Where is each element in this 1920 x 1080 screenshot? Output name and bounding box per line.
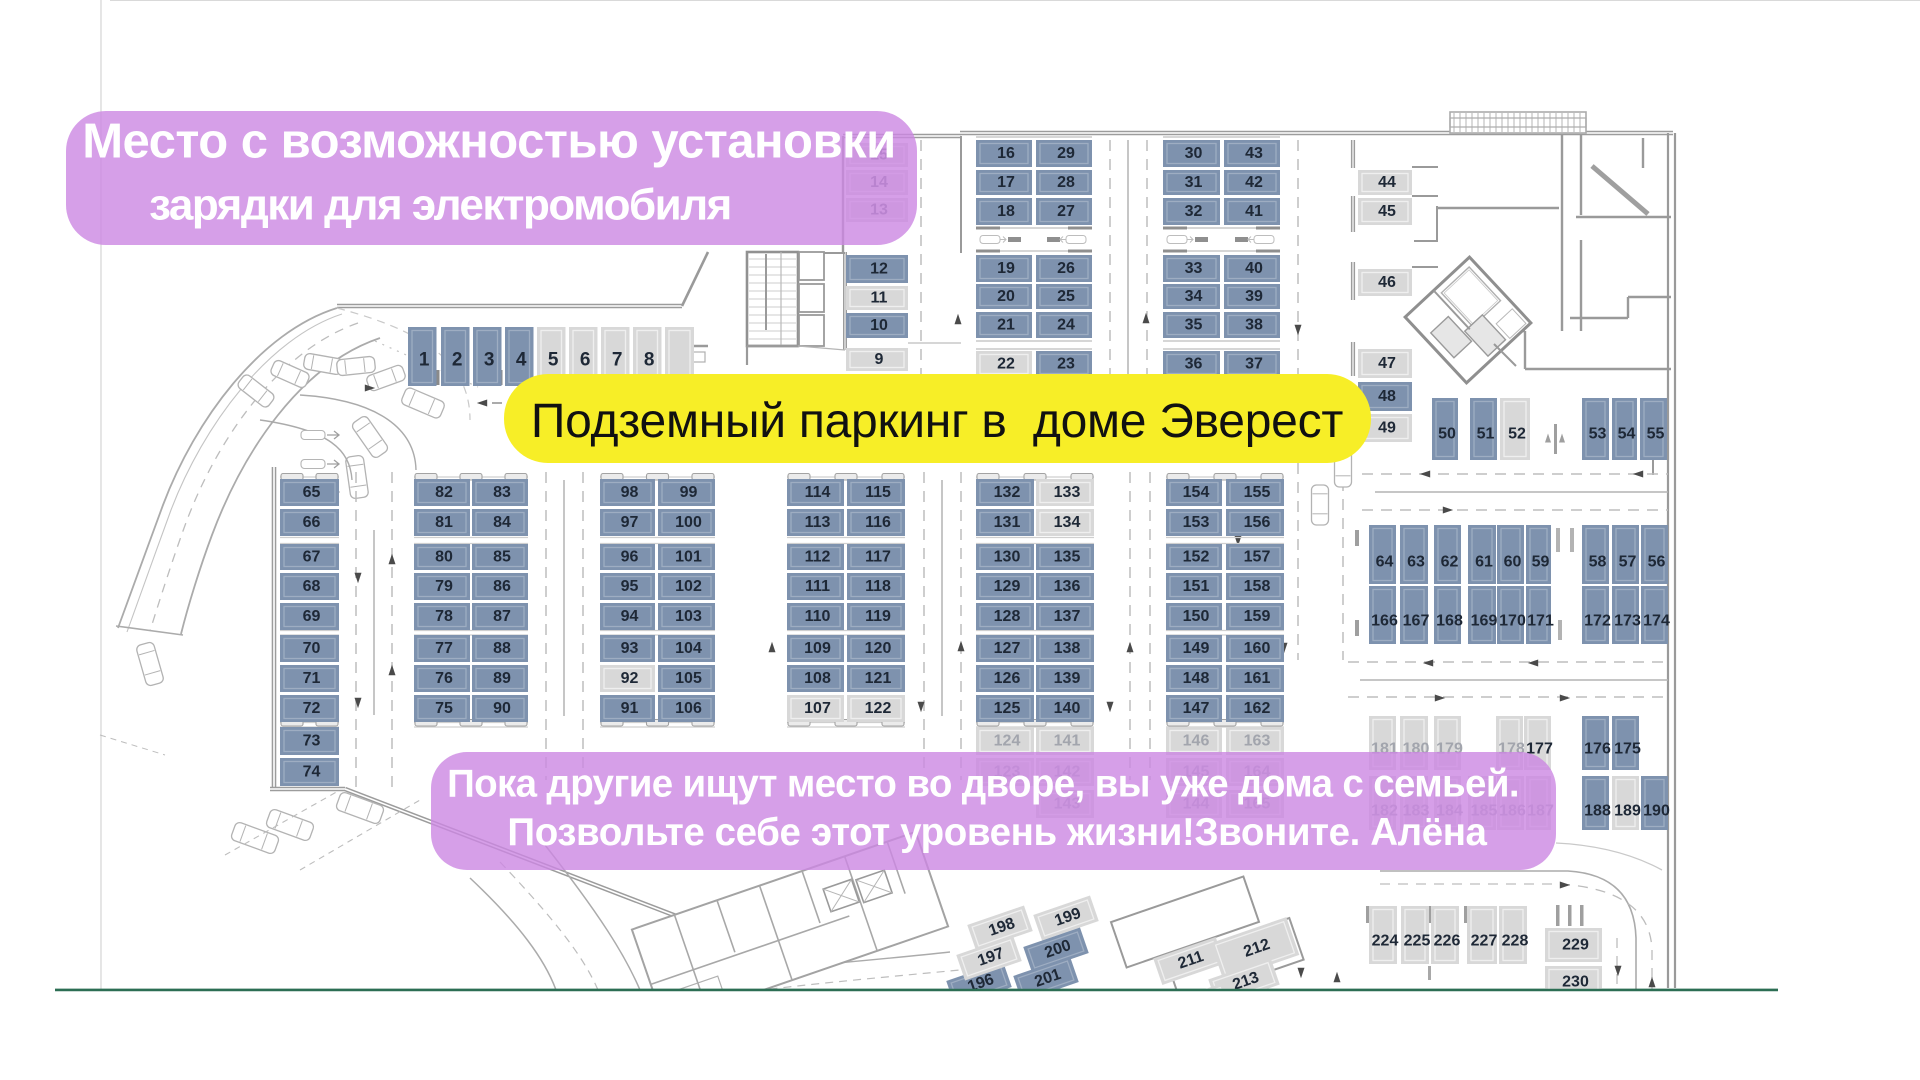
svg-text:131: 131 [994, 514, 1021, 531]
svg-text:42: 42 [1245, 174, 1263, 191]
svg-text:3: 3 [484, 350, 495, 371]
svg-text:105: 105 [675, 670, 702, 687]
svg-text:74: 74 [303, 764, 321, 781]
svg-text:161: 161 [1244, 670, 1271, 687]
svg-text:60: 60 [1504, 554, 1522, 571]
svg-text:34: 34 [1185, 288, 1203, 305]
svg-text:160: 160 [1244, 640, 1271, 657]
svg-text:124: 124 [994, 733, 1021, 750]
svg-text:41: 41 [1245, 203, 1263, 220]
svg-text:10: 10 [870, 317, 888, 334]
svg-text:104: 104 [675, 640, 702, 657]
svg-text:Место с возможностью установки: Место с возможностью установки [82, 115, 896, 169]
svg-text:93: 93 [621, 640, 639, 657]
svg-text:66: 66 [303, 514, 321, 531]
svg-text:98: 98 [621, 484, 639, 501]
svg-text:75: 75 [435, 700, 453, 717]
svg-text:225: 225 [1404, 933, 1431, 950]
svg-text:11: 11 [871, 290, 888, 307]
svg-text:148: 148 [1183, 670, 1210, 687]
svg-text:32: 32 [1185, 203, 1203, 220]
svg-text:76: 76 [435, 670, 453, 687]
svg-text:82: 82 [435, 484, 453, 501]
svg-text:88: 88 [493, 640, 511, 657]
svg-text:94: 94 [621, 608, 639, 625]
svg-text:122: 122 [865, 700, 892, 717]
svg-text:159: 159 [1244, 608, 1271, 625]
svg-text:118: 118 [865, 578, 891, 595]
svg-text:48: 48 [1378, 388, 1396, 405]
svg-text:78: 78 [435, 608, 453, 625]
svg-text:70: 70 [303, 640, 321, 657]
svg-text:167: 167 [1403, 613, 1430, 630]
svg-text:68: 68 [303, 578, 321, 595]
svg-text:71: 71 [303, 670, 321, 687]
svg-text:175: 175 [1614, 741, 1641, 758]
svg-text:47: 47 [1378, 355, 1396, 372]
svg-text:226: 226 [1434, 933, 1461, 950]
svg-text:36: 36 [1185, 356, 1203, 373]
svg-text:35: 35 [1185, 317, 1203, 334]
svg-text:45: 45 [1378, 203, 1396, 220]
svg-text:31: 31 [1185, 174, 1203, 191]
svg-text:138: 138 [1054, 640, 1081, 657]
svg-text:125: 125 [994, 700, 1021, 717]
svg-text:110: 110 [805, 608, 831, 625]
svg-text:127: 127 [994, 640, 1021, 657]
svg-text:103: 103 [675, 608, 702, 625]
svg-text:140: 140 [1054, 700, 1081, 717]
svg-text:44: 44 [1378, 174, 1396, 191]
svg-text:77: 77 [435, 640, 453, 657]
svg-text:Пока другие ищут место во двор: Пока другие ищут место во дворе, вы уже … [447, 763, 1519, 806]
svg-text:152: 152 [1183, 549, 1210, 566]
svg-text:90: 90 [493, 700, 511, 717]
svg-text:17: 17 [997, 174, 1015, 191]
svg-text:135: 135 [1054, 549, 1081, 566]
svg-text:150: 150 [1183, 608, 1210, 625]
svg-text:86: 86 [493, 578, 511, 595]
svg-text:85: 85 [493, 549, 511, 566]
svg-text:227: 227 [1471, 933, 1498, 950]
svg-text:130: 130 [994, 549, 1021, 566]
svg-text:156: 156 [1244, 514, 1271, 531]
svg-text:141: 141 [1054, 733, 1081, 750]
svg-text:189: 189 [1614, 803, 1641, 820]
svg-text:73: 73 [303, 733, 321, 750]
svg-text:6: 6 [580, 350, 591, 371]
svg-text:21: 21 [997, 317, 1015, 334]
svg-text:1: 1 [419, 350, 430, 371]
svg-text:190: 190 [1643, 803, 1670, 820]
svg-text:81: 81 [435, 514, 453, 531]
svg-text:121: 121 [865, 670, 892, 687]
svg-text:Позвольте себе этот уровень жи: Позвольте себе этот уровень жизни!Звонит… [507, 811, 1487, 854]
svg-text:176: 176 [1584, 741, 1611, 758]
svg-text:20: 20 [997, 288, 1015, 305]
svg-text:4: 4 [516, 350, 527, 371]
svg-text:99: 99 [680, 484, 698, 501]
svg-text:210: 210 [1182, 993, 1213, 1018]
svg-text:5: 5 [548, 350, 559, 371]
svg-text:80: 80 [435, 549, 453, 566]
svg-text:155: 155 [1244, 484, 1271, 501]
svg-text:171: 171 [1527, 613, 1554, 630]
svg-text:147: 147 [1183, 700, 1210, 717]
svg-text:72: 72 [303, 700, 321, 717]
svg-text:37: 37 [1245, 356, 1263, 373]
svg-text:229: 229 [1562, 937, 1589, 954]
svg-text:109: 109 [804, 640, 831, 657]
svg-text:137: 137 [1054, 608, 1081, 625]
svg-text:173: 173 [1614, 613, 1641, 630]
svg-text:56: 56 [1648, 554, 1666, 571]
svg-text:23: 23 [1057, 356, 1075, 373]
svg-text:52: 52 [1508, 426, 1526, 443]
svg-text:117: 117 [865, 549, 891, 566]
svg-text:8: 8 [644, 350, 655, 371]
svg-text:91: 91 [621, 700, 639, 717]
svg-text:12: 12 [870, 261, 888, 278]
svg-text:149: 149 [1183, 640, 1210, 657]
svg-text:132: 132 [994, 484, 1021, 501]
svg-text:87: 87 [493, 608, 511, 625]
svg-text:19: 19 [997, 260, 1015, 277]
svg-text:29: 29 [1057, 145, 1075, 162]
svg-text:112: 112 [805, 549, 831, 566]
svg-text:55: 55 [1647, 426, 1665, 443]
svg-text:126: 126 [994, 670, 1021, 687]
svg-text:129: 129 [994, 578, 1021, 595]
svg-text:163: 163 [1244, 733, 1271, 750]
svg-text:53: 53 [1589, 426, 1607, 443]
svg-text:228: 228 [1502, 933, 1529, 950]
svg-text:2: 2 [452, 350, 463, 371]
svg-text:95: 95 [621, 578, 639, 595]
svg-text:166: 166 [1371, 613, 1398, 630]
svg-text:101: 101 [675, 549, 702, 566]
svg-text:33: 33 [1185, 260, 1203, 277]
svg-text:107: 107 [804, 700, 831, 717]
svg-text:188: 188 [1584, 803, 1611, 820]
svg-text:115: 115 [865, 484, 891, 501]
svg-text:Подземный паркинг в доме Эвер: Подземный паркинг в доме Эверест [531, 395, 1343, 448]
svg-text:108: 108 [804, 670, 831, 687]
svg-text:89: 89 [493, 670, 511, 687]
svg-text:46: 46 [1378, 274, 1396, 291]
svg-text:114: 114 [805, 484, 831, 501]
svg-text:119: 119 [865, 608, 891, 625]
svg-text:39: 39 [1245, 288, 1263, 305]
svg-text:30: 30 [1185, 145, 1203, 162]
svg-text:102: 102 [675, 578, 702, 595]
svg-text:38: 38 [1245, 317, 1263, 334]
svg-text:67: 67 [303, 549, 321, 566]
svg-text:96: 96 [621, 549, 639, 566]
svg-text:106: 106 [675, 700, 702, 717]
svg-text:162: 162 [1244, 700, 1271, 717]
svg-text:9: 9 [875, 351, 884, 368]
svg-text:113: 113 [805, 514, 831, 531]
svg-text:169: 169 [1471, 613, 1498, 630]
svg-text:43: 43 [1245, 145, 1263, 162]
svg-text:26: 26 [1057, 260, 1075, 277]
svg-text:7: 7 [612, 350, 623, 371]
svg-text:158: 158 [1244, 578, 1271, 595]
svg-text:97: 97 [621, 514, 639, 531]
svg-text:153: 153 [1183, 514, 1210, 531]
svg-text:24: 24 [1057, 317, 1075, 334]
svg-text:154: 154 [1183, 484, 1210, 501]
svg-text:83: 83 [493, 484, 511, 501]
svg-text:65: 65 [303, 484, 321, 501]
svg-text:69: 69 [303, 608, 321, 625]
svg-text:172: 172 [1584, 613, 1611, 630]
svg-text:139: 139 [1054, 670, 1081, 687]
svg-text:84: 84 [493, 514, 511, 531]
svg-text:168: 168 [1436, 613, 1463, 630]
svg-text:62: 62 [1441, 554, 1459, 571]
svg-text:100: 100 [675, 514, 702, 531]
svg-text:151: 151 [1183, 578, 1210, 595]
svg-text:134: 134 [1054, 514, 1081, 531]
svg-text:27: 27 [1057, 203, 1075, 220]
svg-text:63: 63 [1407, 554, 1425, 571]
svg-text:50: 50 [1438, 426, 1456, 443]
svg-text:61: 61 [1475, 554, 1493, 571]
svg-text:64: 64 [1376, 554, 1394, 571]
svg-text:133: 133 [1054, 484, 1081, 501]
svg-text:51: 51 [1477, 426, 1495, 443]
svg-text:40: 40 [1245, 260, 1263, 277]
svg-text:79: 79 [435, 578, 453, 595]
svg-text:54: 54 [1618, 426, 1636, 443]
svg-text:22: 22 [997, 356, 1015, 373]
svg-text:18: 18 [997, 203, 1015, 220]
svg-text:28: 28 [1057, 174, 1075, 191]
svg-text:157: 157 [1244, 549, 1271, 566]
svg-text:224: 224 [1372, 933, 1399, 950]
svg-text:зарядки для электромобиля: зарядки для электромобиля [149, 181, 731, 230]
svg-text:16: 16 [997, 145, 1015, 162]
svg-text:111: 111 [805, 578, 830, 595]
svg-text:116: 116 [865, 514, 891, 531]
svg-text:146: 146 [1183, 733, 1210, 750]
svg-text:57: 57 [1619, 554, 1637, 571]
svg-text:230: 230 [1562, 974, 1589, 991]
svg-text:170: 170 [1499, 613, 1526, 630]
svg-text:59: 59 [1532, 554, 1550, 571]
svg-text:136: 136 [1054, 578, 1081, 595]
svg-text:58: 58 [1589, 554, 1607, 571]
svg-text:49: 49 [1378, 420, 1396, 437]
svg-text:174: 174 [1643, 613, 1670, 630]
svg-text:120: 120 [865, 640, 892, 657]
svg-text:92: 92 [621, 670, 639, 687]
svg-text:25: 25 [1057, 288, 1075, 305]
svg-text:128: 128 [994, 608, 1021, 625]
